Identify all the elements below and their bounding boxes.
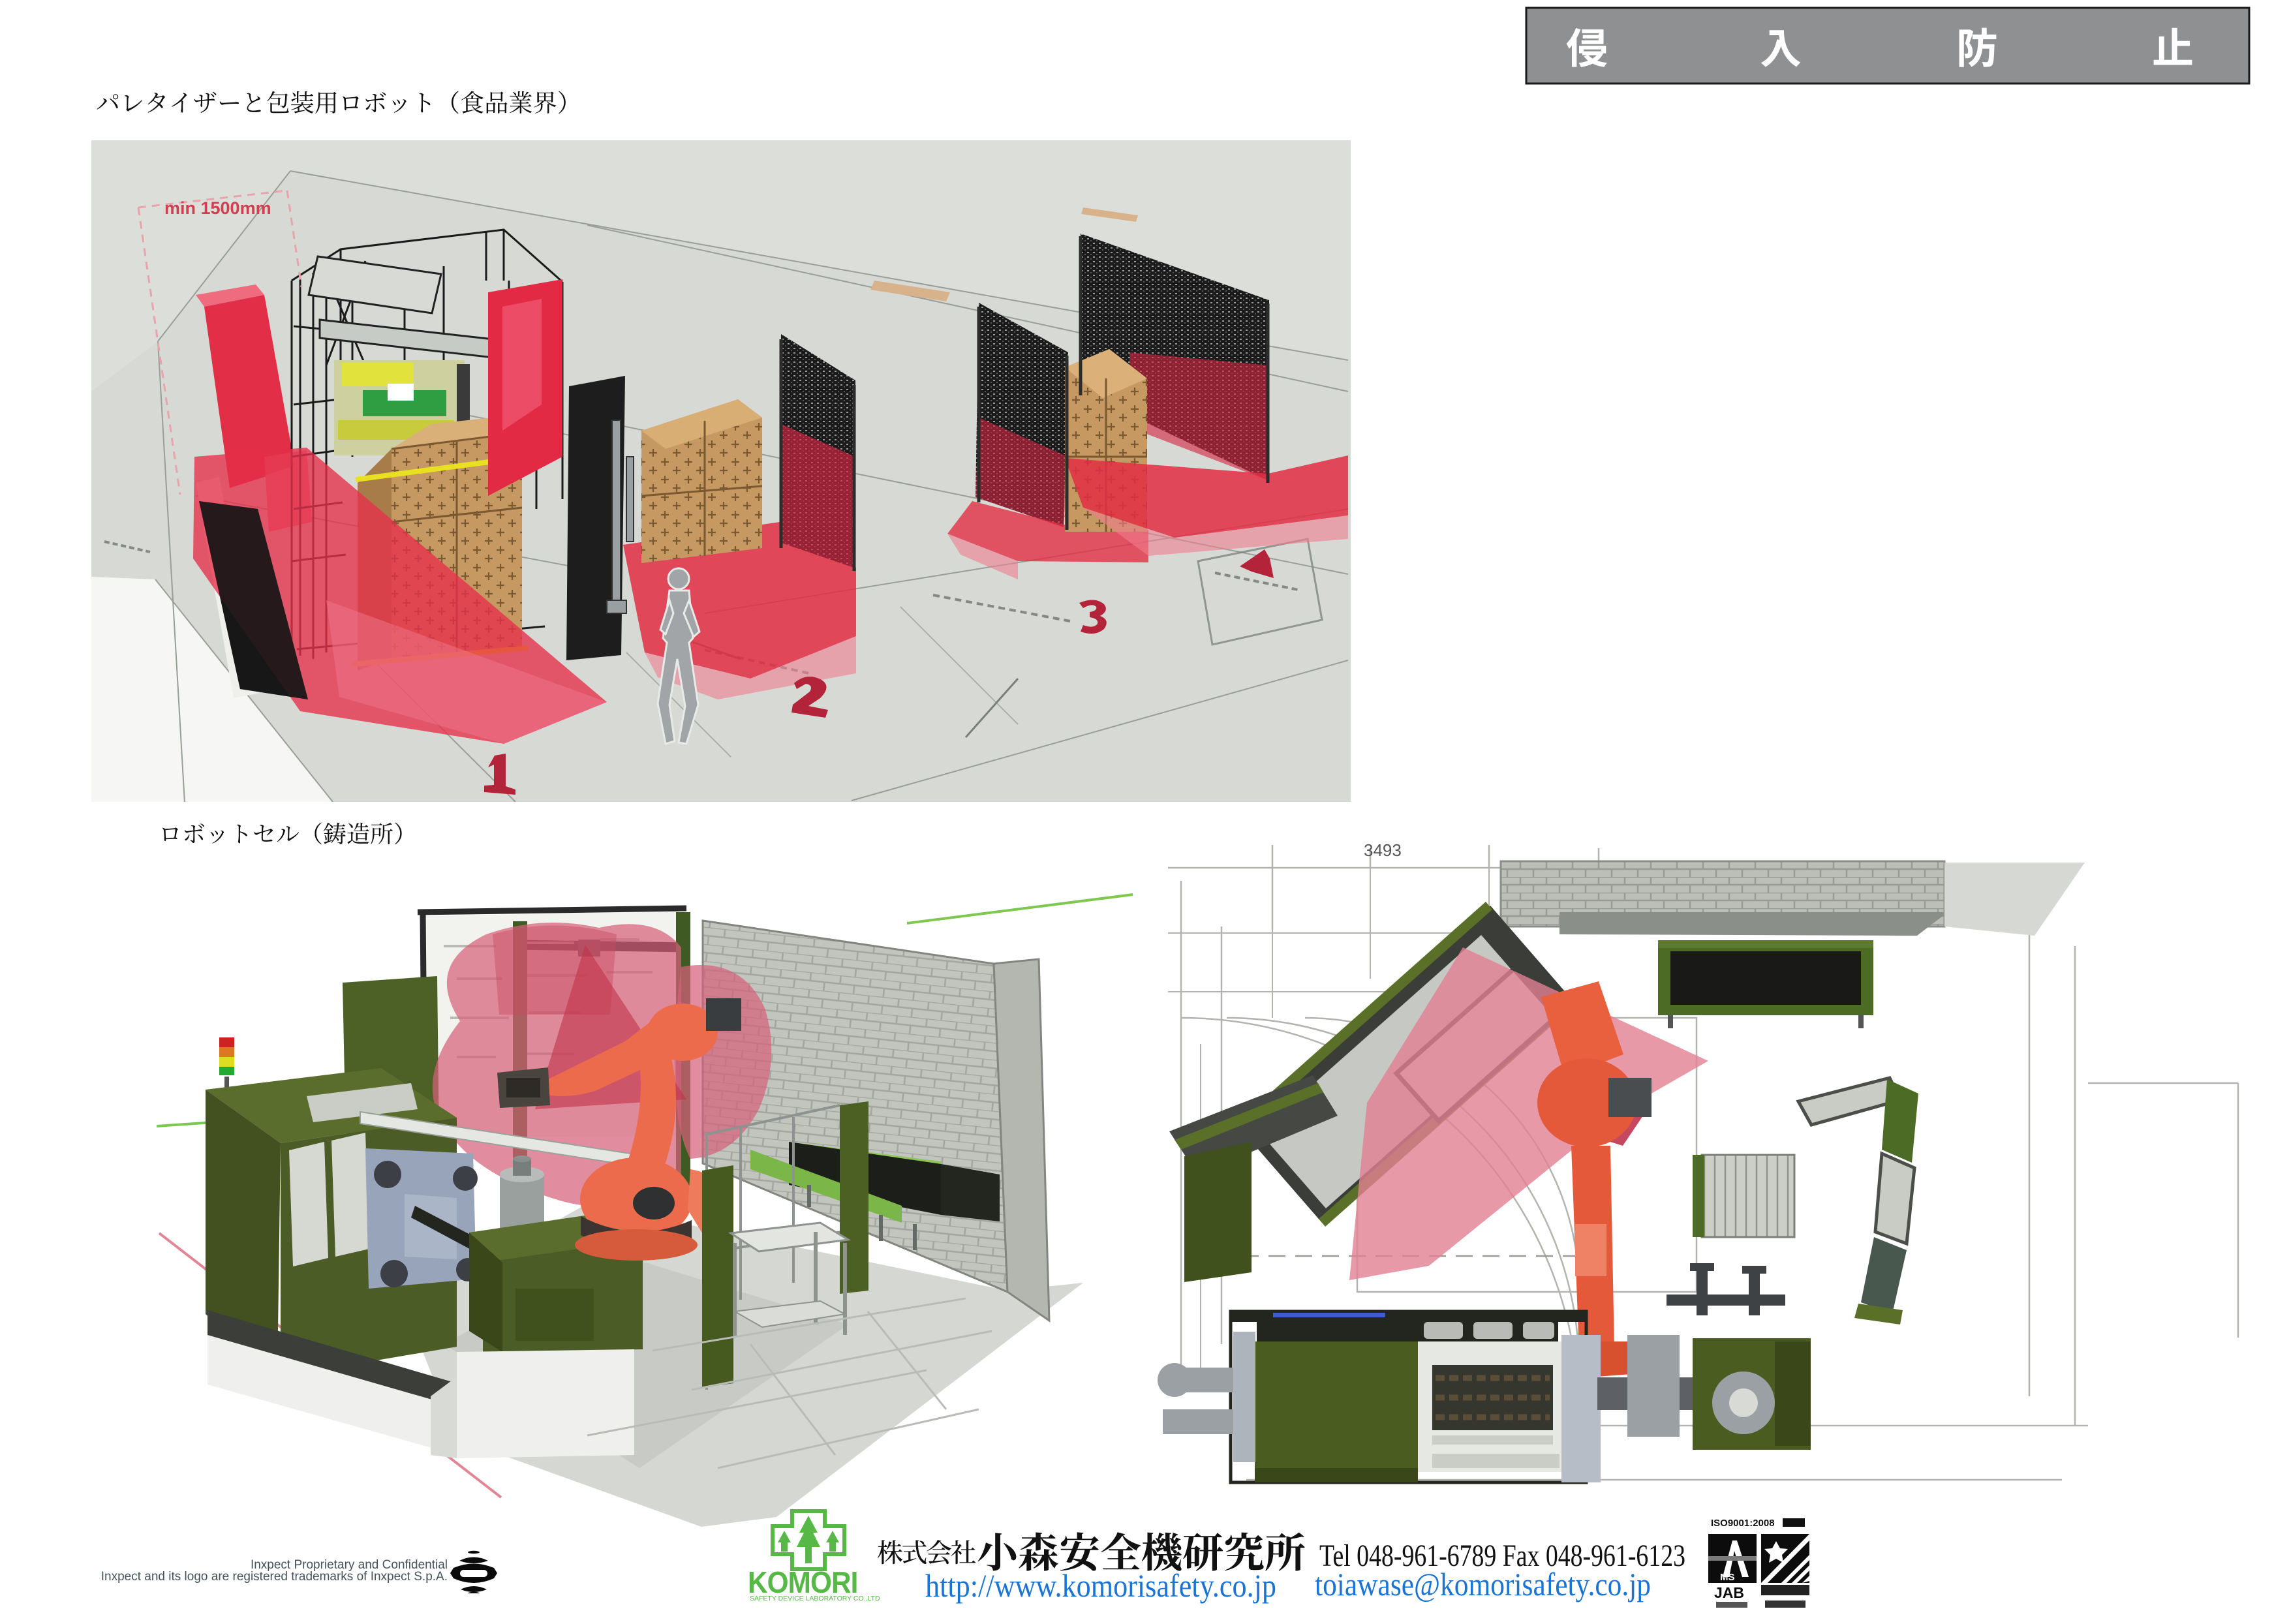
svg-text:http://www.komorisafety.co.jp: http://www.komorisafety.co.jp (925, 1567, 1276, 1604)
svg-text:toiawase@komorisafety.co.jp: toiawase@komorisafety.co.jp (1315, 1566, 1651, 1602)
svg-text:ISO9001:2008: ISO9001:2008 (1711, 1518, 1775, 1529)
svg-text:3493: 3493 (1364, 840, 1402, 860)
svg-text:min 1500mm: min 1500mm (164, 198, 271, 218)
svg-text:JAB: JAB (1714, 1584, 1744, 1601)
svg-text:MS: MS (1720, 1572, 1735, 1583)
